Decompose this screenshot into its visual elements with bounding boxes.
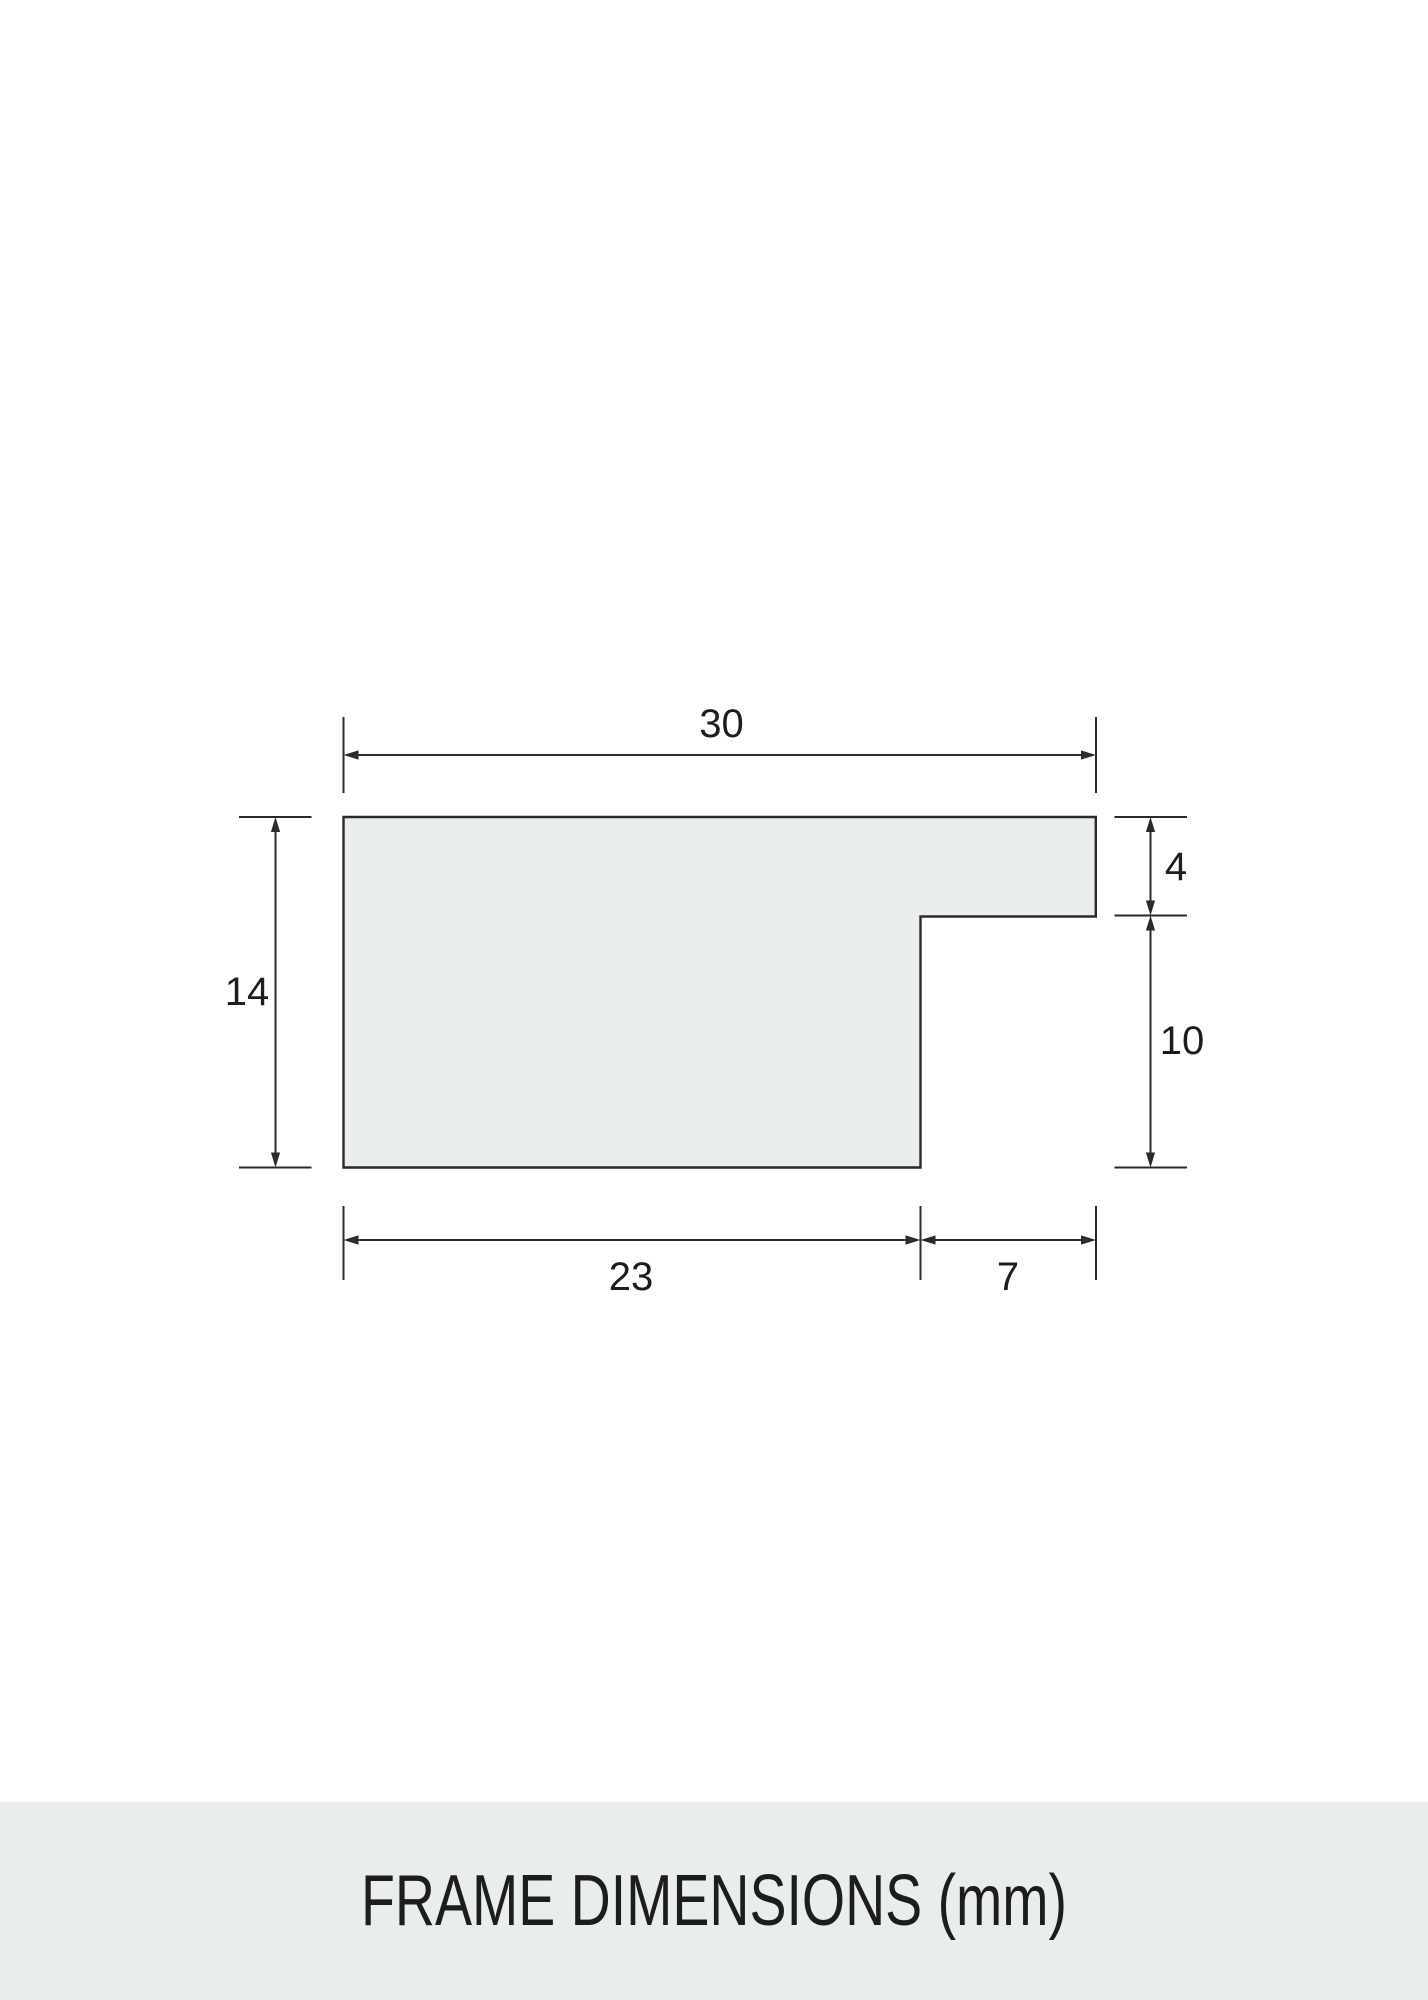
svg-text:7: 7 <box>997 1255 1019 1299</box>
svg-text:30: 30 <box>699 702 744 746</box>
svg-text:4: 4 <box>1165 845 1187 889</box>
svg-text:23: 23 <box>609 1255 654 1299</box>
svg-text:10: 10 <box>1160 1019 1205 1063</box>
svg-text:FRAME DIMENSIONS (mm): FRAME DIMENSIONS (mm) <box>361 1861 1067 1941</box>
svg-text:14: 14 <box>225 970 270 1014</box>
